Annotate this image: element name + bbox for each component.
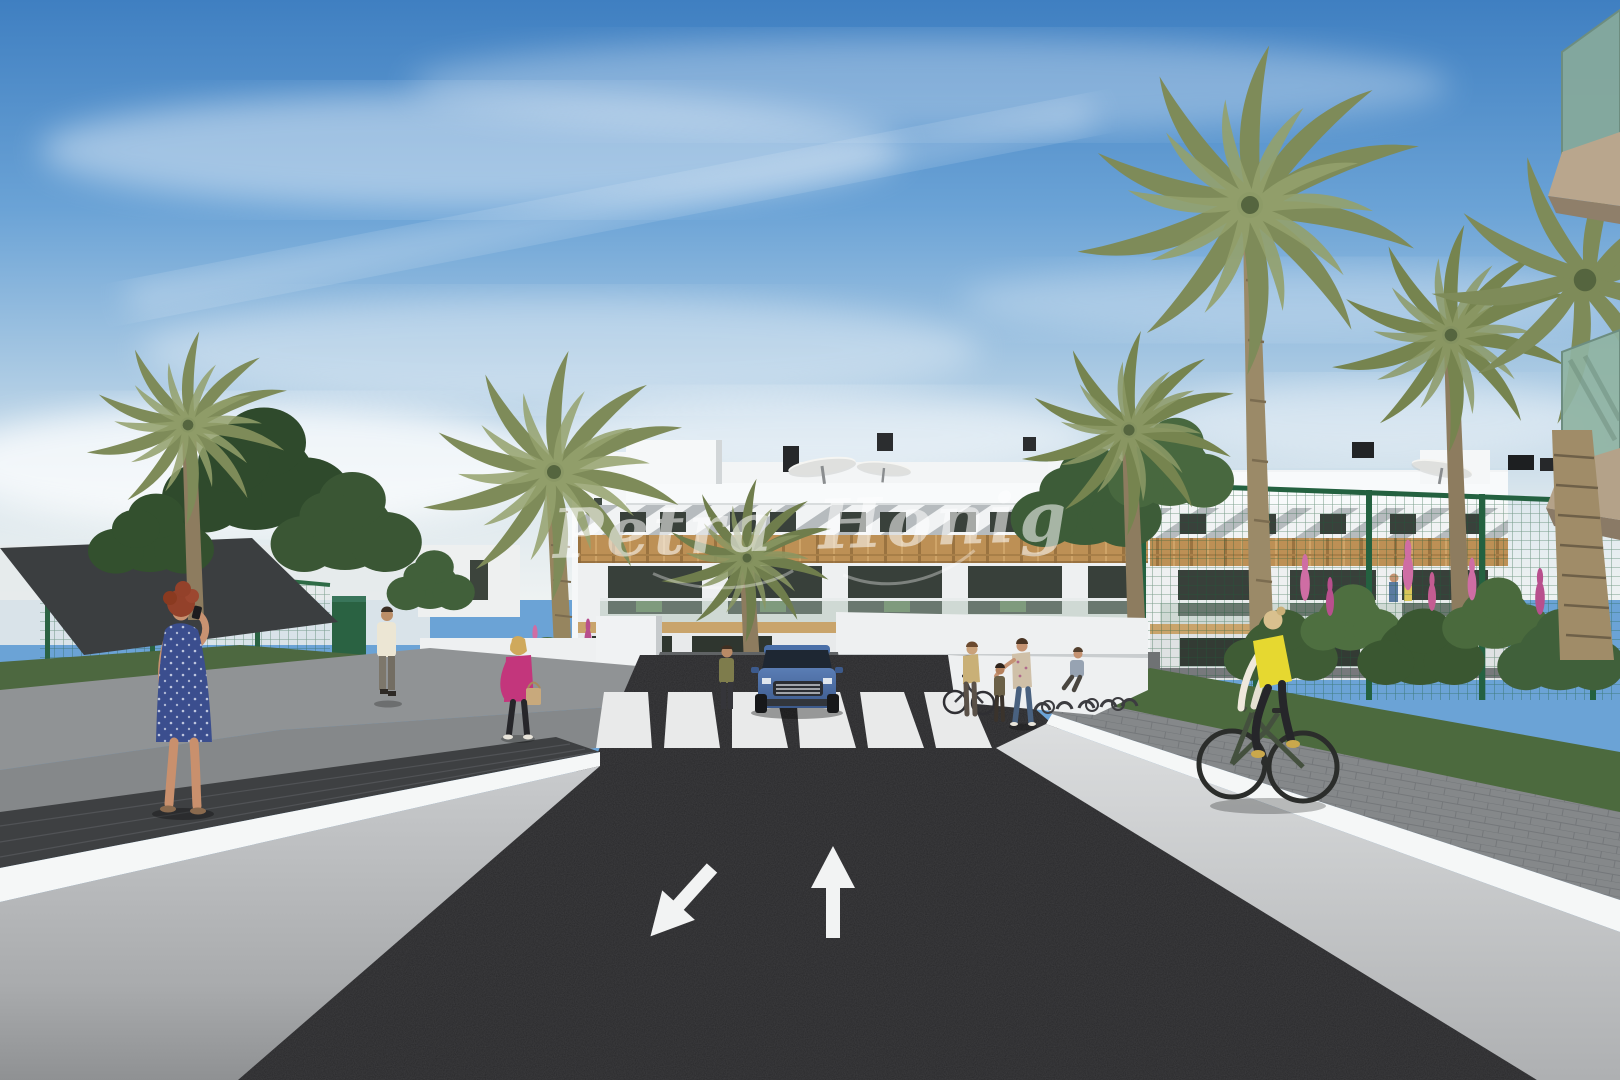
render-canvas: Petra Honig xyxy=(0,0,1620,1080)
crosswalk-stripe xyxy=(664,692,720,748)
roof-vent-icon xyxy=(877,433,893,451)
roof-vent-icon xyxy=(1508,455,1534,470)
roof-vent-icon xyxy=(1023,437,1036,451)
suv xyxy=(751,645,843,719)
roof-vent-icon xyxy=(1352,442,1374,458)
crosswalk-stripe xyxy=(596,692,652,748)
